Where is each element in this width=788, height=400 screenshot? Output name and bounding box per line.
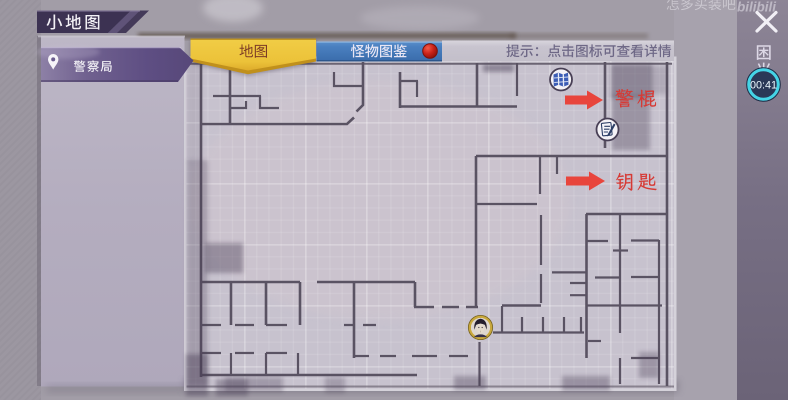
svg-text:00:41: 00:41 [750,79,777,91]
